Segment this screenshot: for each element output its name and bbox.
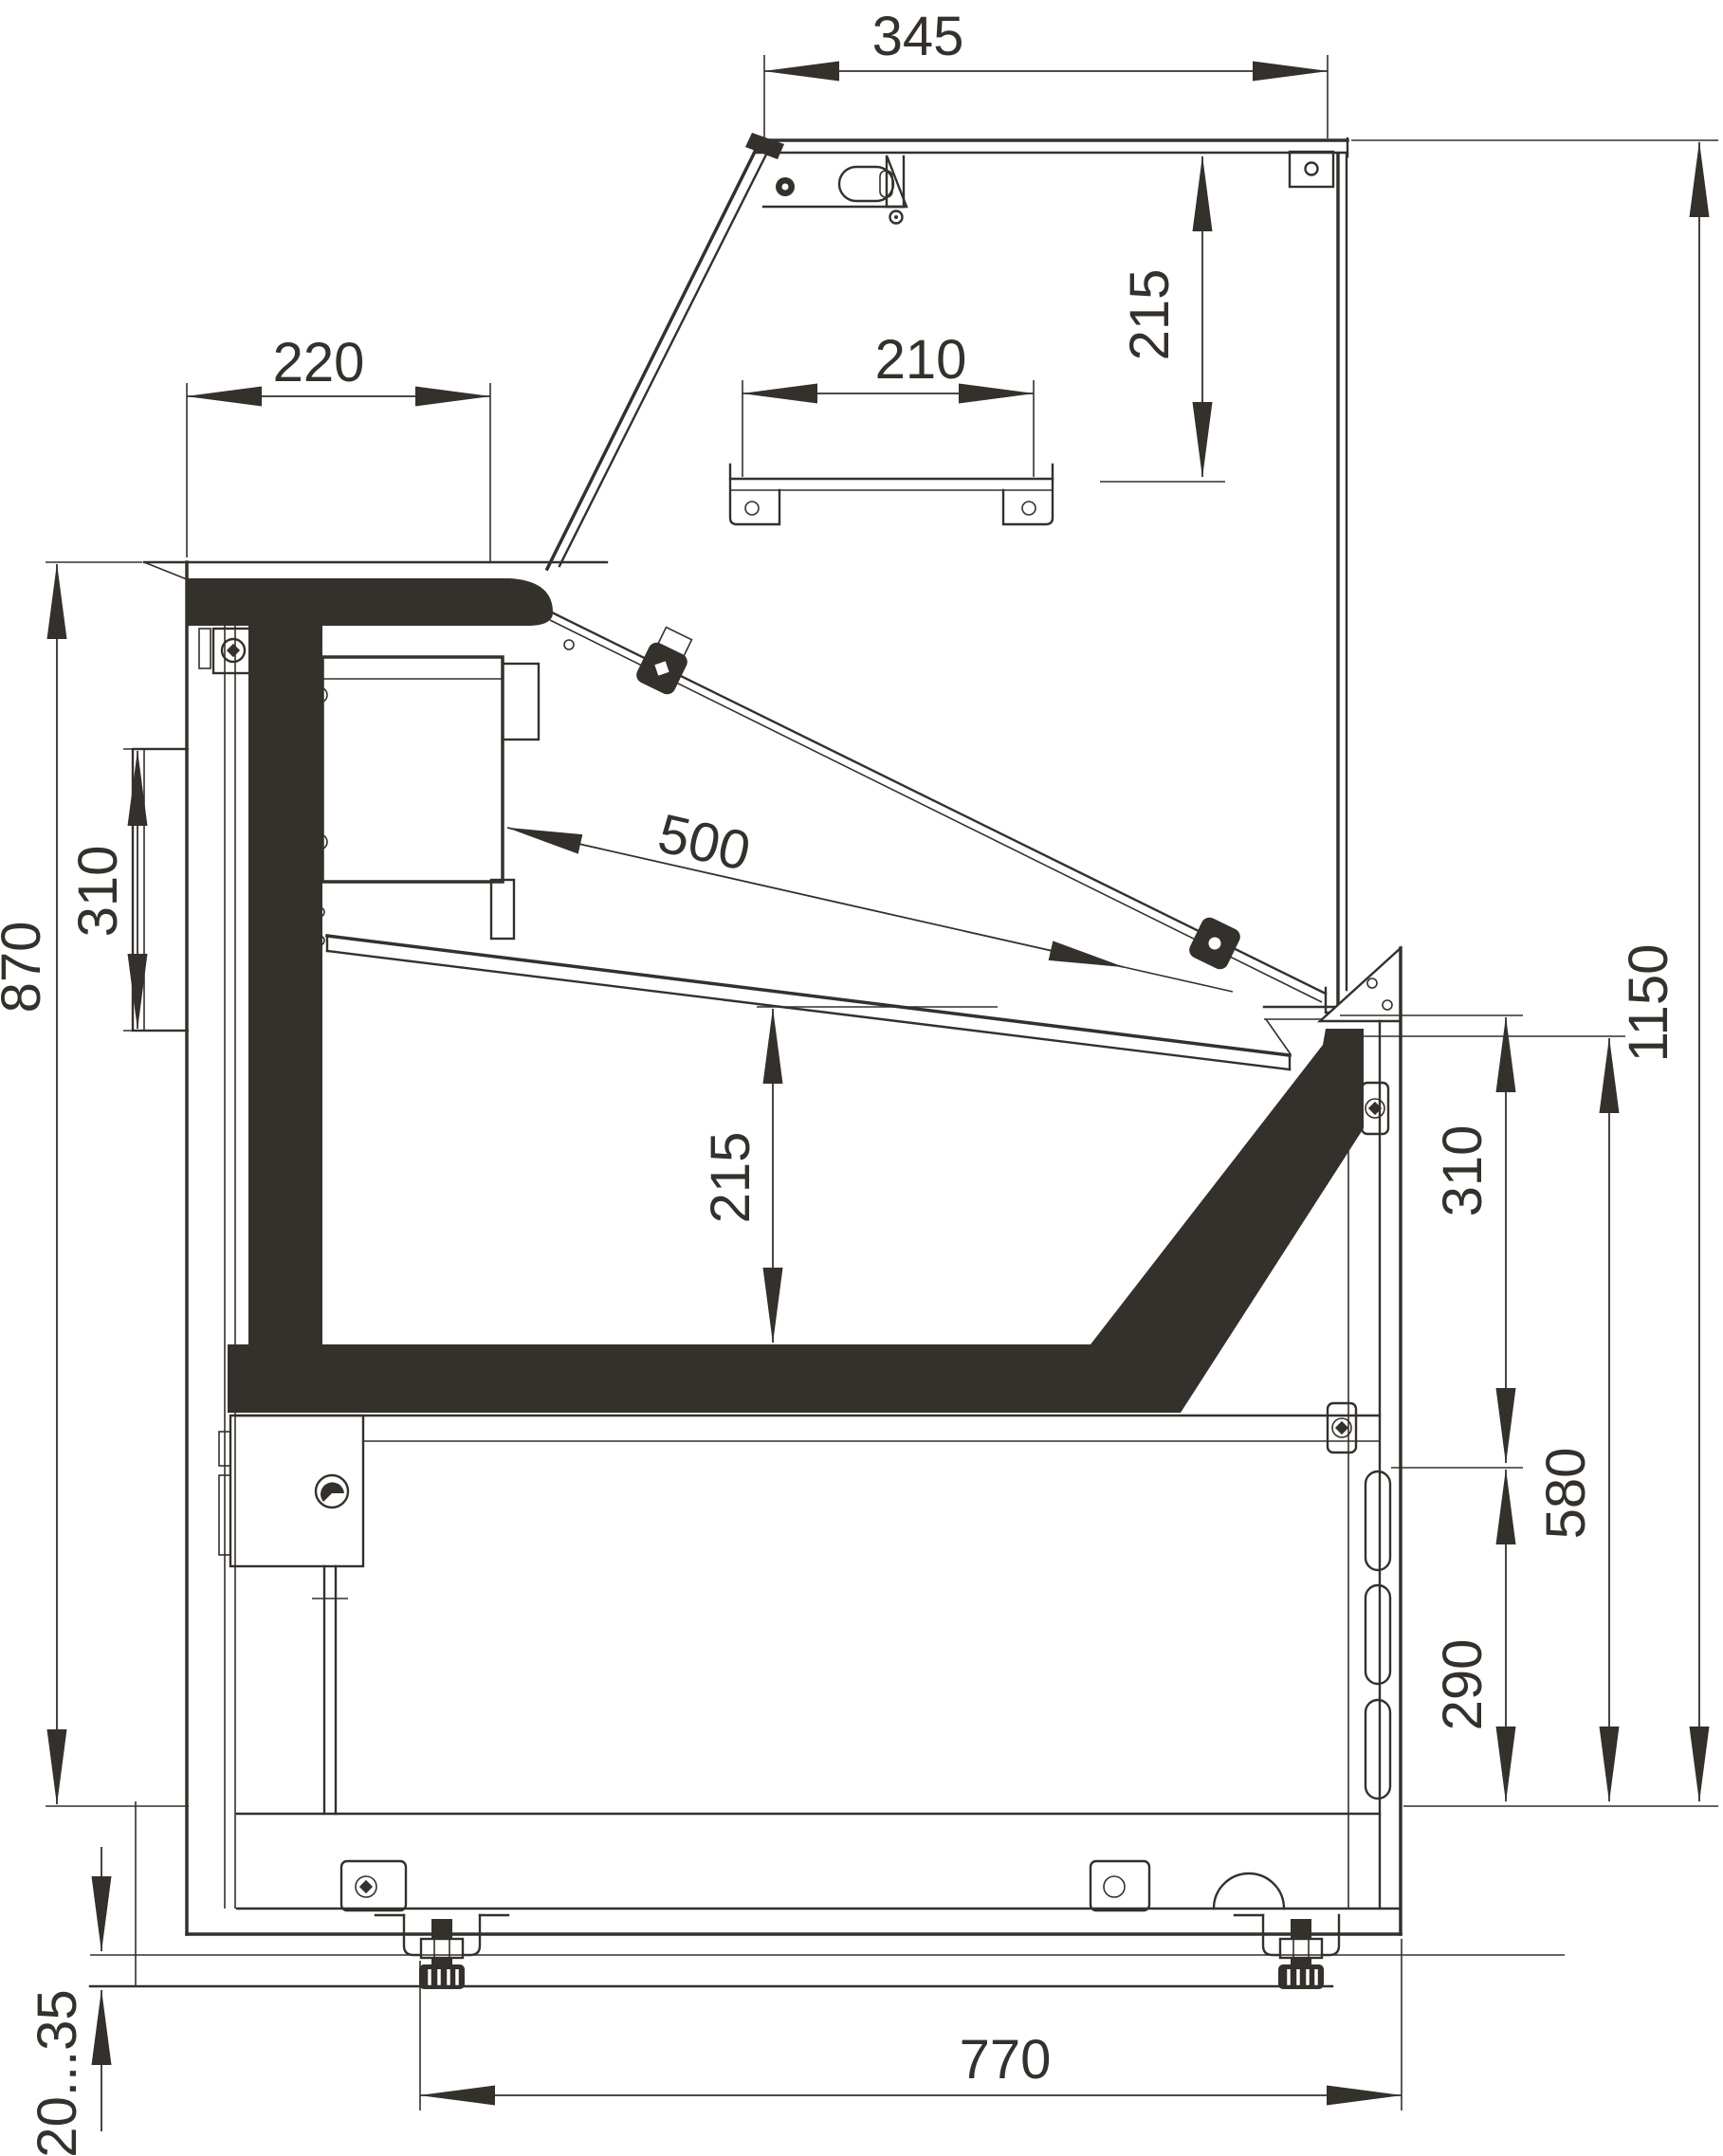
drawing-canvas: 345 215 220 210 500: [0, 0, 1723, 2156]
dim-canopy-depth-label: 220: [273, 332, 365, 393]
sloped-glass-inner: [559, 145, 771, 566]
drain-glyph-flag: [321, 1482, 344, 1502]
foot-right: [1235, 1915, 1339, 1989]
dim-display-deck-label: 500: [652, 802, 756, 883]
sill-to-deck: [1266, 1019, 1291, 1054]
cable-notch: [1214, 1873, 1284, 1909]
hinge-bolt-center: [894, 215, 898, 219]
dim-rear-body-label: 870: [0, 922, 52, 1014]
shelf: [730, 465, 1053, 524]
back-wall-insulation: [248, 621, 322, 1346]
dim-rear-panel-label: 310: [67, 846, 129, 938]
dimension-top-width: 345: [764, 6, 1328, 138]
dimension-louver-height: 290: [1432, 1470, 1506, 1801]
lamp-tube: [839, 167, 893, 201]
dim-louver-label: 290: [1432, 1639, 1494, 1731]
dimension-foot-adjustment: 20...35: [27, 1801, 136, 2156]
dim-shelf-depth-label: 210: [875, 329, 967, 391]
dim-foot-adjust-label: 20...35: [27, 1989, 88, 2156]
insulation-fill: [187, 133, 1364, 1413]
partition-clip-2: [1186, 915, 1243, 973]
base-bracket-left: [341, 1861, 406, 1910]
shelf-bracket-left-hole: [745, 502, 759, 515]
louver-slot-3: [1366, 1700, 1390, 1799]
canopy-screw-drive: [227, 644, 240, 657]
foot-left: [376, 1915, 508, 1989]
bottom-insulation: [228, 1029, 1364, 1413]
dim-top-width-label: 345: [872, 6, 964, 67]
dimension-rear-panel-height: 310: [67, 749, 189, 1031]
deck-rear-support: [491, 880, 514, 939]
louver-slot-2: [1366, 1585, 1390, 1684]
partition-clip-1: [633, 625, 698, 698]
dim-front-lower-label: 580: [1535, 1448, 1597, 1540]
glass-pivot-hole: [782, 184, 789, 191]
louver-slot-1: [1366, 1471, 1390, 1570]
louver-screw-2-drive: [1335, 1421, 1348, 1434]
base-bracket-right: [1091, 1861, 1149, 1910]
evaporator-box: [322, 657, 503, 882]
shelf-bracket-right-hole: [1022, 502, 1036, 515]
dim-base-depth-label: 770: [960, 2029, 1052, 2091]
dim-upper-glass-label: 215: [1119, 269, 1181, 361]
canopy-insulation: [187, 578, 553, 626]
dim-overall-height-label: 1150: [1618, 944, 1679, 1063]
top-glass-clip-hole: [1306, 163, 1318, 175]
adjustable-feet: [90, 1915, 1565, 1989]
top-glass-clip: [1290, 152, 1333, 187]
technical-drawing: 345 215 220 210 500: [0, 0, 1723, 2156]
dimension-display-deck-depth: 500: [507, 802, 1233, 992]
dimension-canopy-depth: 220: [187, 332, 490, 563]
sloped-glass-outer: [547, 142, 760, 569]
base-bracket-left-drive: [359, 1880, 373, 1893]
canopy-tab: [199, 629, 211, 668]
dim-front-upper-label: 310: [1432, 1125, 1494, 1217]
dimension-shelf-depth: 210: [742, 329, 1034, 477]
canopy-corner-chamfer: [144, 562, 187, 579]
evaporator-box-step: [503, 664, 539, 740]
dimension-overall-height: 1150: [1351, 140, 1718, 1806]
deck-bottom: [327, 951, 1290, 1069]
ext-line: [1124, 967, 1233, 992]
deck-top: [327, 936, 1290, 1055]
dimension-chamber-height: 215: [700, 1007, 998, 1343]
dim-chamber-label: 215: [700, 1132, 761, 1224]
shelf-bracket-left: [730, 465, 779, 524]
base-bracket-right-screw: [1104, 1876, 1125, 1897]
dimension-base-depth: 770: [420, 1939, 1402, 2110]
case-structure: [133, 138, 1401, 1934]
partition-hole: [564, 640, 574, 649]
rear-access-panel: [133, 749, 187, 1031]
dimension-upper-glass-to-shelf: 215: [1100, 156, 1225, 482]
